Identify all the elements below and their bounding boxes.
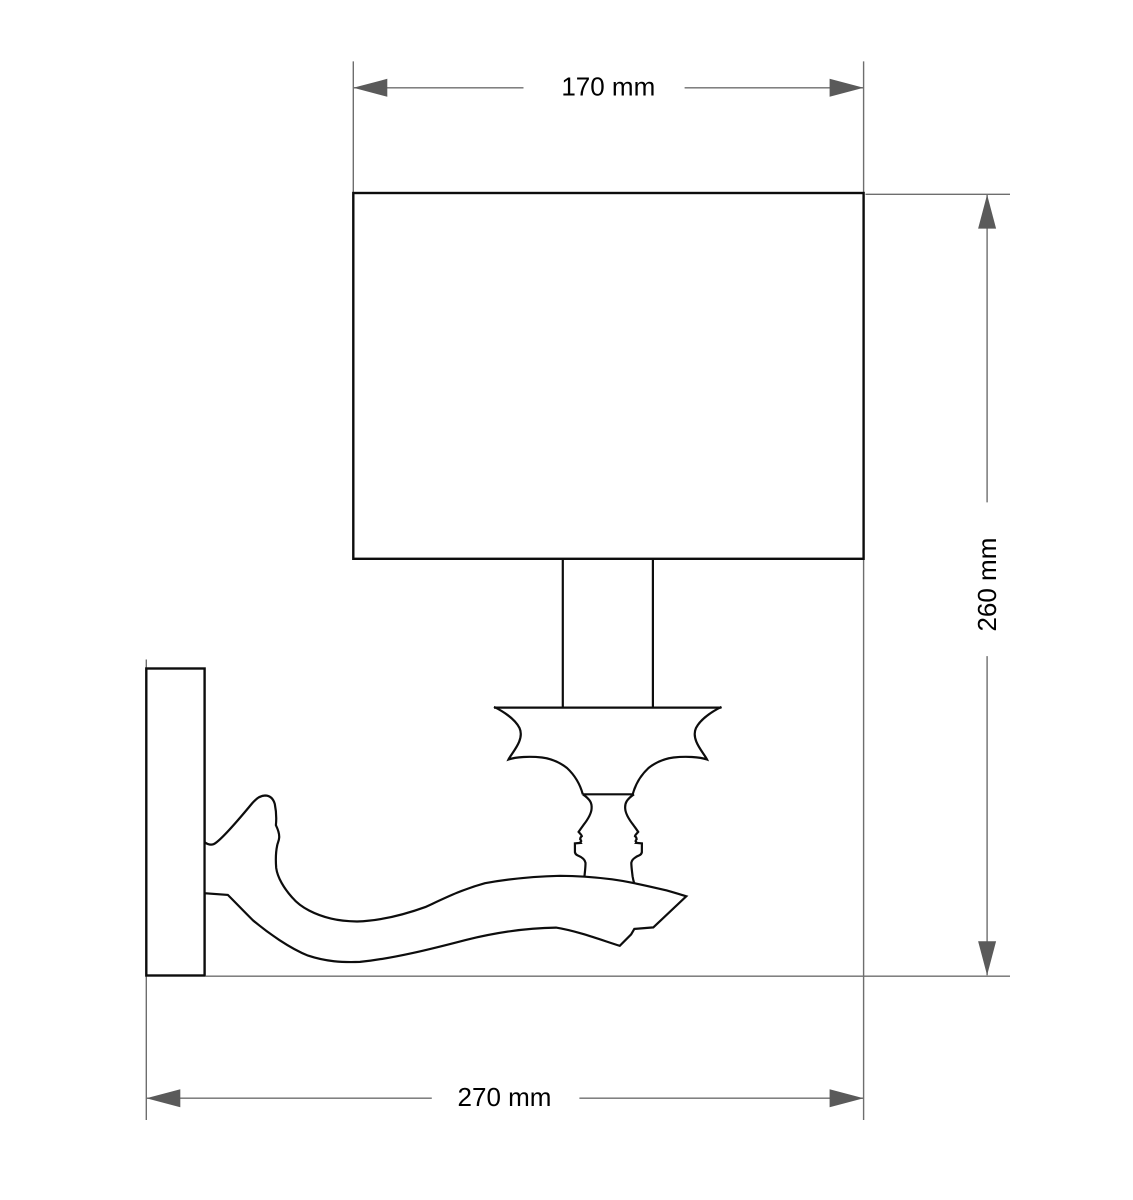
svg-text:260 mm: 260 mm [972,538,1002,632]
svg-text:270 mm: 270 mm [458,1082,552,1112]
svg-text:170 mm: 170 mm [561,71,655,101]
